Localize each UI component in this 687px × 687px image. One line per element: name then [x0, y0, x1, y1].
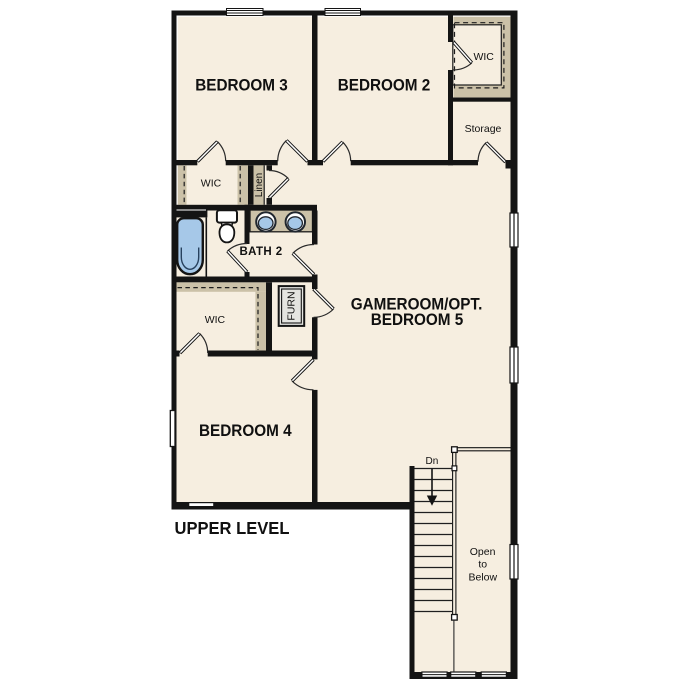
svg-text:Dn: Dn: [426, 456, 439, 467]
svg-text:BEDROOM 5: BEDROOM 5: [371, 310, 464, 329]
svg-text:Below: Below: [468, 571, 497, 583]
svg-text:UPPER LEVEL: UPPER LEVEL: [175, 517, 290, 538]
svg-text:BATH 2: BATH 2: [239, 246, 282, 258]
svg-text:WIC: WIC: [205, 314, 226, 326]
svg-text:Storage: Storage: [465, 123, 502, 135]
svg-text:WIC: WIC: [201, 177, 222, 189]
svg-text:BEDROOM 2: BEDROOM 2: [338, 76, 431, 95]
svg-text:FURN: FURN: [286, 291, 298, 320]
svg-text:BEDROOM 3: BEDROOM 3: [195, 76, 288, 95]
svg-text:BEDROOM 4: BEDROOM 4: [199, 421, 292, 440]
svg-text:Linen: Linen: [254, 173, 265, 197]
svg-text:to: to: [478, 559, 487, 571]
svg-text:WIC: WIC: [473, 51, 494, 63]
svg-text:Open: Open: [470, 546, 496, 558]
